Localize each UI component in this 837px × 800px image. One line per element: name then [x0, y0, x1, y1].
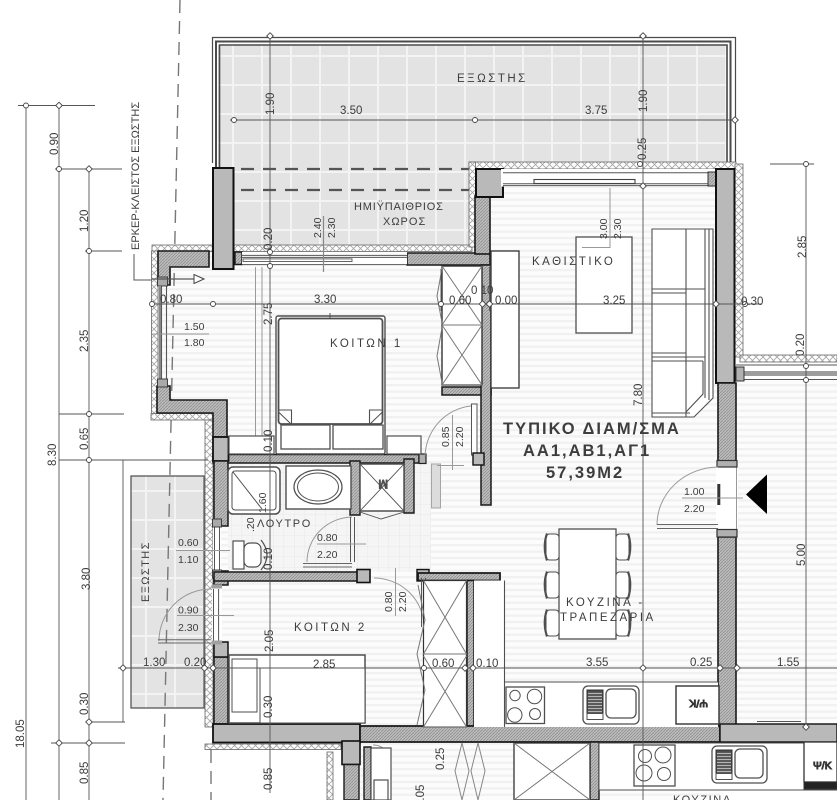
svg-text:5.00: 5.00 [796, 544, 808, 566]
svg-text:0.60: 0.60 [449, 295, 471, 307]
svg-text:3.75: 3.75 [585, 105, 607, 117]
svg-text:M: M [378, 477, 388, 489]
svg-text:2.40: 2.40 [312, 217, 324, 238]
svg-text:1.30: 1.30 [143, 657, 165, 669]
svg-text:ΤΡΑΠΕΖΑΡΙΑ: ΤΡΑΠΕΖΑΡΙΑ [560, 612, 656, 624]
svg-text:8.30: 8.30 [47, 444, 59, 466]
svg-text:1.90: 1.90 [638, 90, 650, 112]
svg-text:0.20: 0.20 [184, 657, 206, 669]
svg-text:0.85: 0.85 [263, 768, 275, 790]
svg-text:7.80: 7.80 [633, 384, 645, 406]
svg-text:0.30: 0.30 [263, 696, 275, 718]
svg-text:2.20: 2.20 [317, 549, 338, 561]
svg-text:1.20: 1.20 [79, 210, 91, 232]
svg-text:3.25: 3.25 [603, 295, 625, 307]
svg-text:1.90: 1.90 [265, 93, 277, 115]
svg-text:Ψ/Κ: Ψ/Κ [689, 697, 708, 709]
svg-text:ΚΑΘΙΣΤΙΚΟ: ΚΑΘΙΣΤΙΚΟ [532, 256, 615, 268]
svg-text:0.10: 0.10 [263, 430, 275, 452]
svg-text:Ψ/Κ: Ψ/Κ [813, 760, 832, 772]
svg-text:0.65: 0.65 [79, 428, 91, 450]
svg-text:1.10: 1.10 [178, 554, 199, 566]
svg-text:2.35: 2.35 [79, 330, 91, 352]
svg-text:ΕΡΚΕΡ-ΚΛΕΙΣΤΟΣ ΕΞΩΣΤΗΣ: ΕΡΚΕΡ-ΚΛΕΙΣΤΟΣ ΕΞΩΣΤΗΣ [130, 102, 142, 250]
svg-text:2.05: 2.05 [415, 785, 427, 800]
svg-text:2.30: 2.30 [178, 622, 199, 634]
svg-text:ΕΞΩΣΤΗΣ: ΕΞΩΣΤΗΣ [140, 541, 152, 602]
svg-text:0.85: 0.85 [79, 762, 91, 784]
svg-text:ΚΟΙΤΩΝ 2: ΚΟΙΤΩΝ 2 [294, 622, 367, 634]
svg-text:0.30: 0.30 [741, 296, 763, 308]
svg-text:2.20: 2.20 [397, 591, 409, 612]
svg-text:2.20: 2.20 [684, 503, 705, 515]
svg-text:0.20: 0.20 [795, 334, 807, 356]
svg-text:0.90: 0.90 [49, 133, 61, 155]
svg-text:2.20: 2.20 [454, 426, 466, 447]
svg-text:1.80: 1.80 [184, 337, 205, 349]
svg-text:0.80: 0.80 [160, 294, 182, 306]
svg-text:0.10: 0.10 [263, 548, 275, 570]
svg-text:1.50: 1.50 [184, 321, 205, 333]
svg-text:0.00: 0.00 [495, 295, 517, 307]
svg-text:ΚΟΥΖΙΝΑ: ΚΟΥΖΙΝΑ [673, 794, 732, 800]
svg-text:0.90: 0.90 [178, 605, 199, 617]
svg-text:0.25: 0.25 [637, 138, 649, 160]
svg-text:3.55: 3.55 [586, 657, 608, 669]
svg-text:0 10: 0 10 [471, 285, 493, 297]
svg-text:ΚΟΙΤΩΝ 1: ΚΟΙΤΩΝ 1 [330, 338, 403, 350]
svg-text:3.50: 3.50 [340, 105, 362, 117]
svg-text:3.30: 3.30 [314, 294, 336, 306]
svg-text:0.80: 0.80 [317, 532, 338, 544]
svg-text:ΧΩΡΟΣ: ΧΩΡΟΣ [383, 216, 426, 228]
svg-text:0.80: 0.80 [383, 591, 395, 612]
svg-text:ΛΟΥΤΡΟ: ΛΟΥΤΡΟ [257, 518, 312, 530]
svg-text:0.60: 0.60 [178, 537, 199, 549]
svg-text:ΤΥΠΙΚΟ ΔΙΑΜ/ΣΜΑ: ΤΥΠΙΚΟ ΔΙΑΜ/ΣΜΑ [503, 420, 681, 438]
svg-text:ΚΟΥΖΙΝΑ -: ΚΟΥΖΙΝΑ - [566, 597, 645, 609]
svg-text:3.00: 3.00 [598, 218, 610, 239]
svg-text:1.00: 1.00 [684, 486, 705, 498]
svg-text:0.10: 0.10 [476, 658, 498, 670]
svg-text:0.60: 0.60 [432, 658, 454, 670]
svg-text:2.30: 2.30 [326, 217, 338, 238]
svg-text:.20: .20 [245, 517, 257, 532]
svg-text:0.20: 0.20 [263, 228, 275, 250]
svg-text:0.85: 0.85 [440, 426, 452, 447]
svg-text:0.25: 0.25 [435, 748, 447, 770]
svg-text:2.85: 2.85 [313, 659, 335, 671]
svg-text:1.60: 1.60 [257, 492, 269, 513]
svg-text:1.55: 1.55 [777, 657, 799, 669]
svg-text:2.75: 2.75 [263, 303, 275, 325]
svg-text:18.05: 18.05 [15, 719, 27, 748]
svg-text:3.80: 3.80 [81, 568, 93, 590]
svg-text:2.05: 2.05 [264, 630, 276, 652]
svg-text:ΑΑ1,ΑΒ1,ΑΓ1: ΑΑ1,ΑΒ1,ΑΓ1 [523, 442, 651, 460]
svg-text:2.30: 2.30 [612, 218, 624, 239]
svg-text:57,39Μ2: 57,39Μ2 [546, 464, 624, 482]
svg-text:2.85: 2.85 [797, 236, 809, 258]
svg-text:0.25: 0.25 [690, 657, 712, 669]
svg-text:ΕΞΩΣΤΗΣ: ΕΞΩΣΤΗΣ [457, 73, 528, 85]
svg-text:ΗΜΙΫΠΑΙΘΡΙΟΣ: ΗΜΙΫΠΑΙΘΡΙΟΣ [354, 201, 444, 213]
svg-text:0.30: 0.30 [79, 693, 91, 715]
